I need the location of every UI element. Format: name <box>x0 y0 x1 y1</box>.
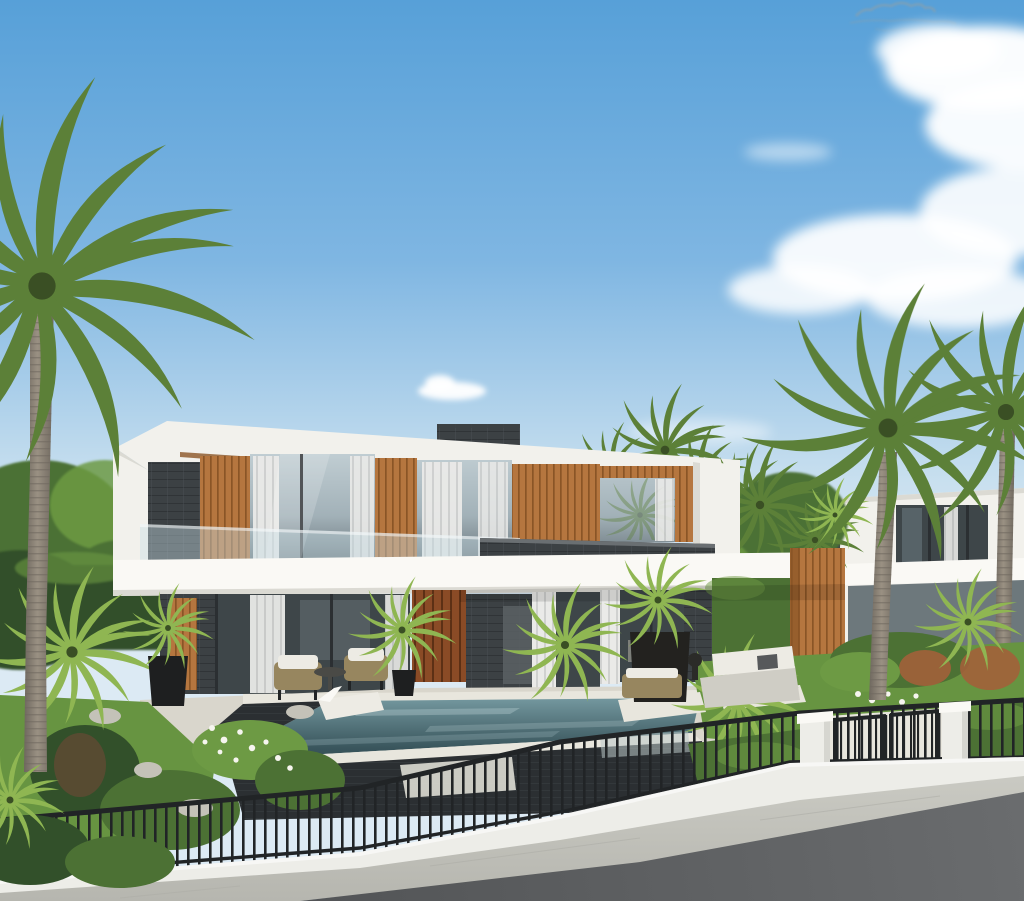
neighbor-window-main <box>896 505 988 567</box>
dark-pillow <box>757 654 778 670</box>
door-plant-pot <box>392 670 416 696</box>
scene-canvas <box>0 0 1024 901</box>
curtain-column-2 <box>600 590 620 684</box>
villa-rendering: Photorealistic architectural rendering o… <box>0 0 1024 901</box>
outdoor-sofa <box>700 646 800 708</box>
planter-pot-left <box>148 656 188 706</box>
dark-shrub <box>54 733 106 797</box>
wood-slat-panel-upper-3 <box>675 478 693 542</box>
wood-lintel <box>600 466 693 480</box>
roof-parapet-cap <box>437 424 520 428</box>
wicker-bench <box>622 668 682 698</box>
